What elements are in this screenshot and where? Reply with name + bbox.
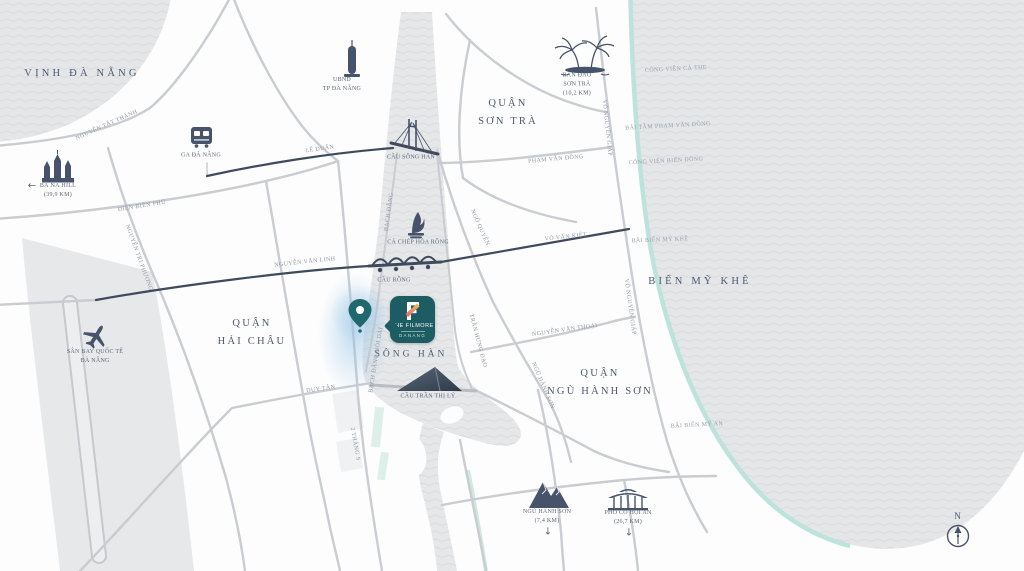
- filmore-subtitle: DANANG: [399, 333, 426, 338]
- filmore-name: THE FILMORE: [391, 323, 433, 329]
- han-river-water: [363, 12, 521, 571]
- danang-bay-water: [0, 0, 173, 142]
- city-parcels: [332, 390, 389, 480]
- map-stage: VỊNH ĐÀ NẴNGBIỂN MỸ KHÊSÔNG HÀNQUẬN SƠN …: [0, 0, 1024, 571]
- filmore-rule: [401, 331, 425, 332]
- my-khe-sea-water: [630, 0, 1024, 549]
- city-hall-tower-icon: [344, 40, 360, 77]
- train-station-icon: [191, 127, 212, 148]
- bana-castle-icon: [42, 150, 74, 183]
- hoian-bridge-icon: [608, 489, 648, 510]
- map-base: [0, 0, 1024, 571]
- compass-north-icon: [948, 526, 969, 547]
- filmore-marker-bubble: THE FILMORE DANANG: [390, 296, 435, 343]
- compass-north-label: N: [954, 510, 962, 524]
- palm-island-icon: [555, 36, 614, 75]
- filmore-f-logo-icon: [404, 301, 422, 321]
- location-glow: [318, 272, 390, 396]
